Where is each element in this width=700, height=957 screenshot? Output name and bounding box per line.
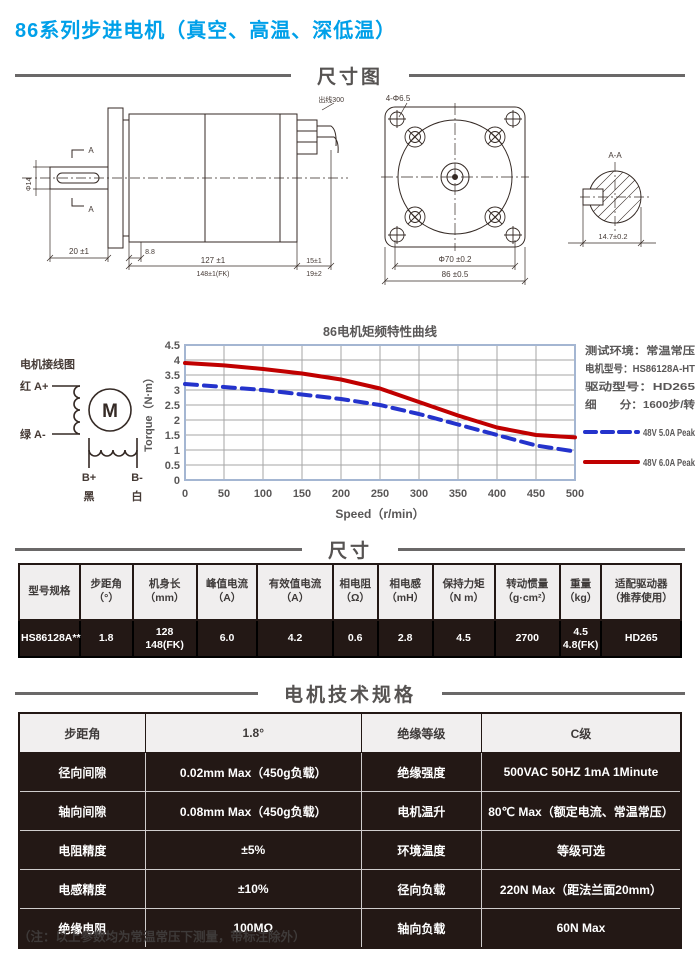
x-tick: 50 [218,488,230,500]
x-tick: 0 [182,488,188,500]
y-tick: 0 [174,475,180,487]
legend-info-line: 电机型号：HS86128A-HT [585,362,696,375]
section-title: 电机技术规格 [284,680,416,707]
spec-label-cell: 径向间隙 [19,753,145,792]
size-table-header: 保持力矩（N m） [433,564,495,620]
size-table-header: 相电阻（Ω） [333,564,378,620]
dim-rear2-label: 19±2 [306,271,322,278]
legend-label-red: 48V 6.0A Peak [643,458,695,469]
dimension-drawing: A A 出线300 Φ14 20 ±1 8.8 127 ±1 148±1(FK)… [0,90,700,320]
size-table-header-row: 型号规格步距角（°）机身长（mm）峰值电流（A）有效值电流（A）相电阻（Ω）相电… [19,564,681,620]
spec-table-row: 径向间隙0.02mm Max（450g负载）绝缘强度500VAC 50HZ 1m… [19,753,681,792]
spec-table-row: 电感精度±10%径向负载220N Max（距法兰面20mm） [19,870,681,909]
spec-value-cell: 0.08mm Max（450g负载） [145,792,361,831]
spec-value-cell: ±5% [145,831,361,870]
spec-label-cell: 步距角 [19,713,145,753]
wire-black-label: 黑 [84,490,95,503]
size-table-header: 机身长（mm） [133,564,197,620]
size-table-cell: 4.54.8(FK) [560,620,602,657]
x-tick: 200 [332,488,350,500]
x-tick: 350 [449,488,467,500]
spec-sheet-page: 86系列步进电机（真空、高温、深低温） 尺寸图 [0,0,700,957]
y-axis-label: Torque（N·m） [142,372,155,452]
dim-body-label: 127 ±1 [201,256,226,265]
x-tick: 150 [293,488,311,500]
spec-label-cell: 电感精度 [19,870,145,909]
x-tick: 300 [410,488,428,500]
legend-info-line: 细 分：1600步/转 [585,398,696,411]
spec-value-cell: 等级可选 [481,831,681,870]
front-square-label: 86 ±0.5 [442,270,469,279]
spec-table-row: 电阻精度±5%环境温度等级可选 [19,831,681,870]
size-table-cell: 6.0 [197,620,258,657]
wire-b-plus-label: B+ [82,472,96,484]
side-view-dimensions: A A 出线300 Φ14 20 ±1 8.8 127 ±1 148±1(FK)… [26,95,344,278]
spec-value-cell: 0.02mm Max（450g负载） [145,753,361,792]
chart-legend: 测试环境：常温常压 电机型号：HS86128A-HT 驱动型号：HD265 细 … [585,344,696,469]
dim-rear-label: 15±1 [306,258,322,265]
x-tick: 100 [254,488,272,500]
torque-chart-section: 电机接线图 M 红 A+ 绿 A- B+ B- 黑 白 [0,320,700,530]
wire-length-label: 出线300 [318,95,344,104]
shaft-diameter-label: Φ14 [26,178,33,191]
size-table-cell: HS86128A** [19,620,80,657]
size-table-header: 步距角（°） [80,564,133,620]
legend-info-line: 驱动型号：HD265 [585,380,695,393]
size-table-header: 相电感（mH） [378,564,433,620]
x-tick: 450 [527,488,545,500]
spec-label-cell: 轴向负载 [361,909,481,949]
section-dim-label: 14.7±0.2 [598,232,627,241]
spec-value-cell: 500VAC 50HZ 1mA 1Minute [481,753,681,792]
spec-value-cell: 220N Max（距法兰面20mm） [481,870,681,909]
spec-table-row: 轴向间隙0.08mm Max（450g负载）电机温升80℃ Max（额定电流、常… [19,792,681,831]
section-header-specs: 电机技术规格 [15,680,685,707]
section-header-size: 尺寸 [15,536,685,563]
y-tick: 2 [174,415,180,427]
x-axis-label: Speed（r/min） [335,506,424,521]
y-tick: 4.5 [165,340,180,352]
spec-table-row: 步距角1.8°绝缘等级C级 [19,713,681,753]
x-axis-ticks: 050100150200250300350400450500 [182,488,584,500]
y-tick: 3.5 [165,370,180,382]
section-title: 尺寸图 [317,62,383,89]
section-mark-a-top: A [88,146,94,155]
size-table-cell: 1.8 [80,620,133,657]
y-tick: 1 [174,445,180,457]
size-table-header: 重量（kg） [560,564,602,620]
size-table-cell: 2.8 [378,620,433,657]
size-table-cell: 4.5 [433,620,495,657]
dim-front-label: 20 ±1 [69,247,90,256]
x-tick: 250 [371,488,389,500]
footnote: （注：以上参数均为常温常压下测量，带标注除外） [18,926,306,945]
section-header-dimension-diagram: 尺寸图 [15,62,685,89]
size-table-cell: HD265 [601,620,681,657]
legend-label-blue: 48V 5.0A Peak [643,428,695,439]
section-mark-a-bottom: A [88,205,94,214]
size-table-cell: 128148(FK) [133,620,197,657]
size-table-header: 峰值电流（A） [197,564,258,620]
spec-label-cell: 绝缘等级 [361,713,481,753]
spec-value-cell: 1.8° [145,713,361,753]
wire-a-plus-label: 红 A+ [20,379,48,393]
spec-label-cell: 环境温度 [361,831,481,870]
spec-table: 步距角1.8°绝缘等级C级径向间隙0.02mm Max（450g负载）绝缘强度5… [18,712,682,949]
y-tick: 1.5 [165,430,180,442]
spec-label-cell: 轴向间隙 [19,792,145,831]
wiring-title: 电机接线图 [20,357,75,371]
dim-step-label: 8.8 [145,249,155,256]
size-table: 型号规格步距角（°）机身长（mm）峰值电流（A）有效值电流（A）相电阻（Ω）相电… [18,563,682,658]
torque-frequency-chart: 86电机矩频特性曲线 00.511.522.533.544.5 05010015… [142,324,584,521]
spec-label-cell: 电机温升 [361,792,481,831]
spec-value-cell: C级 [481,713,681,753]
y-axis-ticks: 00.511.522.533.544.5 [165,340,181,487]
size-table-header: 有效值电流（A） [257,564,332,620]
size-table-header: 适配驱动器（推荐使用） [601,564,681,620]
size-table-cell: 0.6 [333,620,378,657]
spec-label-cell: 径向负载 [361,870,481,909]
wire-a-minus-label: 绿 A- [20,427,46,441]
size-table-data-row: HS86128A**1.8128148(FK)6.04.20.62.84.527… [19,620,681,657]
x-tick: 400 [488,488,506,500]
y-tick: 0.5 [165,460,180,472]
front-diameter-label: Φ70 ±0.2 [438,255,472,264]
page-title: 86系列步进电机（真空、高温、深低温） [15,14,396,43]
side-view [22,103,348,270]
wire-white-label: 白 [132,489,143,503]
y-tick: 3 [174,385,180,397]
section-title: 尺寸 [328,536,372,563]
x-tick: 500 [566,488,584,500]
wire-b-minus-label: B- [131,472,143,484]
wiring-diagram: 电机接线图 M 红 A+ 绿 A- B+ B- 黑 白 [20,357,143,503]
size-table-cell: 2700 [495,620,560,657]
section-aa-label: A-A [608,151,622,160]
y-tick: 4 [174,355,181,367]
spec-label-cell: 绝缘强度 [361,753,481,792]
spec-label-cell: 电阻精度 [19,831,145,870]
y-tick: 2.5 [165,400,180,412]
front-holes-label: 4-Φ6.5 [386,94,411,103]
size-table-header: 转动惯量（g·cm²） [495,564,560,620]
motor-symbol: M [102,401,118,422]
size-table-header: 型号规格 [19,564,80,620]
legend-info-line: 测试环境：常温常压 [585,344,696,357]
dim-body-fk-label: 148±1(FK) [196,271,229,278]
spec-value-cell: 80℃ Max（额定电流、常温常压） [481,792,681,831]
spec-value-cell: 60N Max [481,909,681,949]
chart-title: 86电机矩频特性曲线 [323,324,437,339]
spec-value-cell: ±10% [145,870,361,909]
size-table-cell: 4.2 [257,620,332,657]
